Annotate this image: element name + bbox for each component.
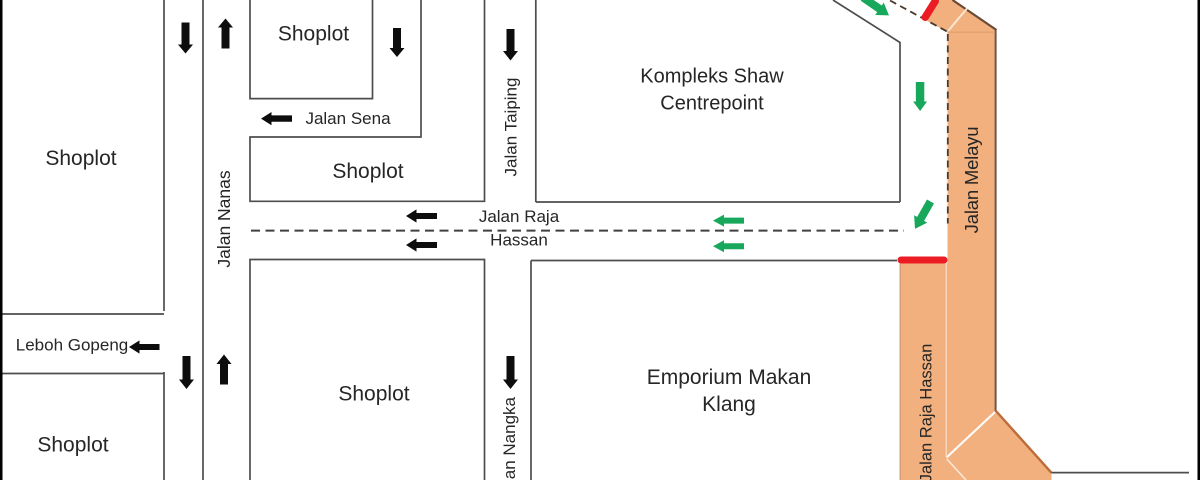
svg-text:Centrepoint: Centrepoint	[660, 93, 764, 115]
svg-text:Hassan: Hassan	[490, 231, 548, 250]
svg-text:Jalan Melayu: Jalan Melayu	[961, 127, 982, 234]
svg-text:Shoplot: Shoplot	[338, 383, 409, 406]
svg-text:Kompleks Shaw: Kompleks Shaw	[640, 66, 784, 88]
svg-text:Shoplot: Shoplot	[278, 23, 349, 46]
svg-text:Jalan Nanas: Jalan Nanas	[214, 170, 234, 268]
svg-text:Shoplot: Shoplot	[332, 160, 403, 183]
svg-text:Jalan Raja: Jalan Raja	[479, 207, 560, 226]
svg-text:Shoplot: Shoplot	[45, 147, 116, 170]
svg-text:Jalan Nangka: Jalan Nangka	[500, 396, 519, 480]
svg-text:Emporium Makan: Emporium Makan	[647, 366, 812, 389]
svg-text:Jalan Sena: Jalan Sena	[305, 109, 391, 128]
svg-text:Jalan Raja Hassan: Jalan Raja Hassan	[918, 344, 936, 480]
svg-text:Shoplot: Shoplot	[37, 434, 108, 457]
svg-text:Jalan Taiping: Jalan Taiping	[502, 78, 521, 177]
svg-text:Leboh Gopeng: Leboh Gopeng	[16, 336, 129, 355]
svg-text:Klang: Klang	[702, 393, 756, 416]
